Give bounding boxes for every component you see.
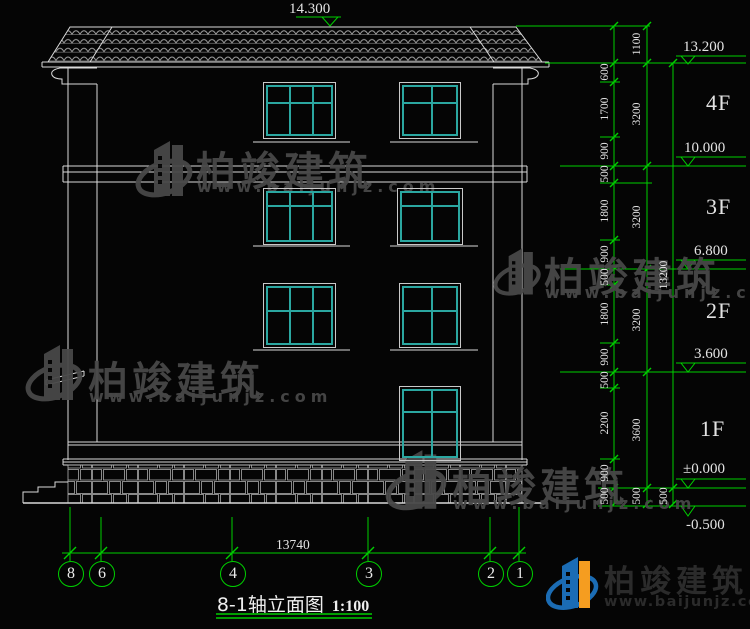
dim-label: 1100 (631, 33, 643, 56)
window-4f-left (263, 82, 336, 139)
watermark (24, 340, 84, 410)
brand-logo-icon (546, 552, 602, 614)
window-3f-left (263, 188, 336, 245)
window-2f-right (399, 283, 461, 348)
dim-label: 500 (658, 487, 670, 504)
floor-label-1f: 1F (700, 416, 725, 442)
axis-bubble-2: 2 (478, 561, 504, 587)
brand-logo: 柏竣建筑 www.baijunjz.com (546, 552, 602, 618)
ridge-elevation-label: 14.300 (289, 1, 330, 18)
window-2f-left (263, 283, 336, 348)
brand-url: www.baijunjz.com (604, 594, 750, 610)
window-4f-right (399, 82, 461, 139)
left-corbel (52, 68, 97, 84)
dim-label: 500 (599, 268, 611, 285)
dim-label: 3200 (631, 206, 643, 229)
axis-bubble-1: 1 (507, 561, 533, 587)
elevation-drawing-canvas: 柏竣建筑 www.baijunjz.com 柏竣建筑 www.baijunjz.… (0, 0, 750, 629)
dim-label: 3600 (631, 419, 643, 442)
dim-label: 900 (599, 245, 611, 262)
roof-fascia (42, 62, 549, 67)
floor-label-4f: 4F (706, 90, 731, 116)
dim-label: 13200 (658, 261, 670, 290)
dim-label: 500 (599, 165, 611, 182)
roof-hip-lines (90, 27, 494, 62)
watermark-logo-icon (24, 340, 84, 406)
floor-label-3f: 3F (706, 194, 731, 220)
window-3f-right (397, 188, 463, 245)
dim-label: 500 (631, 487, 643, 504)
dim-label: 2200 (599, 412, 611, 435)
roof-outline (48, 27, 542, 62)
elevation-label: 10.000 (684, 140, 725, 157)
dim-label: 900 (599, 464, 611, 481)
dim-label: 900 (599, 142, 611, 159)
window-1f (399, 386, 461, 461)
title-scale: 1:100 (332, 598, 369, 615)
axis-bubble-4: 4 (220, 561, 246, 587)
dim-label: 600 (599, 63, 611, 80)
axis-bubble-3: 3 (356, 561, 382, 587)
dim-label: 1800 (599, 200, 611, 223)
watermark-logo-icon (492, 240, 542, 304)
elevation-label: ±0.000 (683, 461, 725, 478)
watermark-logo-icon (133, 136, 195, 202)
dim-label: 1800 (599, 303, 611, 326)
roof-tiles (44, 27, 546, 62)
right-corbel (493, 68, 538, 84)
elevation-label: 13.200 (683, 39, 724, 56)
axis-bubble-8: 8 (58, 561, 84, 587)
elevation-label: -0.500 (686, 517, 725, 534)
bottom-total-dim: 13740 (276, 537, 310, 553)
dim-label: 3200 (631, 309, 643, 332)
elevation-label: 3.600 (694, 346, 728, 363)
dim-label: 500 (599, 487, 611, 504)
watermark (492, 240, 542, 308)
watermark (133, 136, 195, 206)
axis-bubble-6: 6 (89, 561, 115, 587)
drawing-title: 8-1轴立面图1:100 (193, 590, 393, 617)
floor-label-2f: 2F (706, 298, 731, 324)
watermark-url: www.baijunjz.com (89, 387, 332, 406)
dim-label: 900 (599, 348, 611, 365)
dim-label: 500 (599, 371, 611, 388)
title-text: 8-1轴立面图 (217, 594, 324, 616)
elevation-label: 6.800 (694, 243, 728, 260)
dim-label: 3200 (631, 103, 643, 126)
steps (23, 482, 68, 503)
dim-label: 1700 (599, 98, 611, 121)
